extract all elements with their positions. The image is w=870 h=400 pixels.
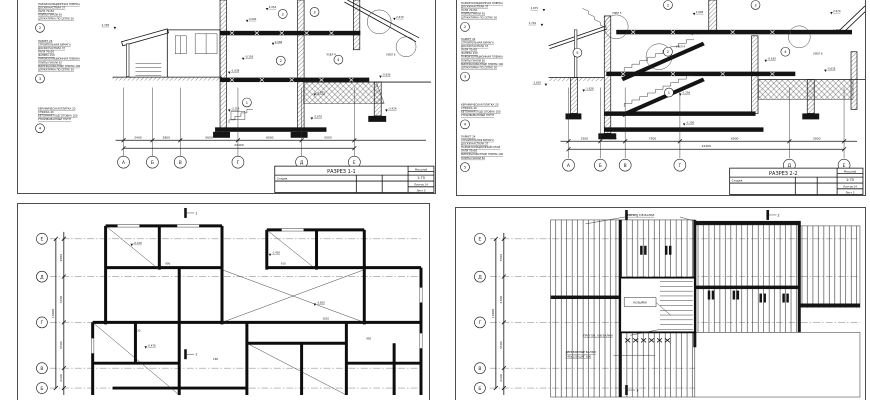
level-mark: -2.678 <box>314 114 323 118</box>
level-mark: -3.206 <box>686 120 695 124</box>
pier-hatched <box>570 78 577 114</box>
joist-bay <box>620 220 695 278</box>
dim-total: 22400 <box>702 144 712 148</box>
framing-plan-drawing: Е Д Г В Б 3500 4500 4500 2100 16000 <box>456 208 865 400</box>
detail-label: УЗЕЛ 5 <box>612 11 622 15</box>
sheet-section-2-2: ПАРОИЗОЛЯЦИОННАЯ ПЛЕНКА ДОСКИ НАСТИЛА 37… <box>456 0 866 196</box>
note-line: ПАРОИЗОЛЯЦИОННАЯ ПЛЕНКА <box>38 2 80 6</box>
section-cut-number: 2 <box>777 213 779 217</box>
scale-label: Масштаб <box>415 167 428 171</box>
section-1-1-drawing: ПАРОИЗОЛЯЦИОННАЯ ПЛЕНКА ДОСКИ НАСТИЛА 37… <box>18 0 435 193</box>
dim-value: 2500 <box>581 136 589 140</box>
porch-roof <box>122 29 169 46</box>
framing: КОЗЫРЕК <box>551 220 860 397</box>
note-line: ПАРОИЗОЛЯЦИОННАЯ ПЛЕНКА <box>461 55 503 59</box>
note-line: ПЛИТЫ ПАКЛИ 50 <box>461 58 485 62</box>
grid-letter: Г <box>679 163 682 169</box>
note-line: СТРОИТЕЛЬНАЯ БУМАГА <box>461 40 494 44</box>
note-line: ЛАГИ 70х50 <box>38 50 54 54</box>
level-mark: -0.476 <box>147 343 156 347</box>
dim-value: 6000 <box>731 136 739 140</box>
node-number: 2 <box>667 3 669 7</box>
dim-value: 4700 <box>59 296 63 304</box>
window-gaps <box>93 226 421 353</box>
section-cut-number: 1 <box>636 213 638 217</box>
soil-hatch <box>759 80 854 100</box>
level-mark: 1.704 <box>529 21 537 25</box>
spec-notes: ПАРОИЗОЛЯЦИОННАЯ ПЛЕНКА ДОСКИ НАСТИЛА 37… <box>35 2 80 133</box>
note-line: ШТУКАТУРКА ПО СЕТКЕ 30 <box>461 65 497 69</box>
basement-slab <box>604 127 763 131</box>
note-line: ШТУКАТУРКА ПО СЕТКЕ 30 <box>38 16 74 20</box>
upper-stair <box>582 8 606 27</box>
level-mark: -0.156 <box>245 55 254 59</box>
grid-letter: Е <box>353 160 356 166</box>
note-line: КЕРАМИЧЕСКАЯ ПЛИТКА 20 <box>461 102 499 106</box>
node-number: 1 <box>246 101 248 105</box>
note-line: ПАРКЕТ 24 <box>461 134 476 138</box>
spec-notes: ПАРОИЗОЛЯЦИОННАЯ ПЛЕНКА ДОСКИ НАСТИЛА 37… <box>461 1 504 172</box>
node-number: 2 <box>667 50 669 54</box>
note-line: ДОСКИ НАСТИЛА 37 <box>461 44 489 48</box>
level-mark: -1.256 <box>682 91 691 95</box>
sheet-section-1-1: ПАРОИЗОЛЯЦИОННАЯ ПЛЕНКА ДОСКИ НАСТИЛА 37… <box>17 0 436 194</box>
level-mark: 2.048 <box>275 40 283 44</box>
porch-steps <box>135 64 161 76</box>
level-mark: 2.728 <box>102 23 110 27</box>
note-line: МИНЕРАЛОВАТНЫЕ ПЛИТЫ 100 <box>461 62 504 66</box>
footing-pad <box>213 132 230 138</box>
note-line: ЛАГИ 70х50 <box>38 9 54 13</box>
small-dim: 1810 <box>322 316 329 320</box>
small-dim: 900 <box>165 262 170 266</box>
level-mark: -0.470 <box>133 241 142 245</box>
node-number: 3 <box>313 10 315 14</box>
grid-letter: Д <box>40 274 44 280</box>
grid-letter: Б <box>151 160 154 166</box>
section-cut-flag <box>766 210 769 220</box>
level-mark: -3.214 <box>231 106 240 110</box>
stage-label: Стадия <box>277 177 288 181</box>
dim-value: 5000 <box>324 135 332 139</box>
grid-letter: Е <box>41 237 44 243</box>
dim-total: 22400 <box>234 143 244 147</box>
section-cut-flag <box>625 210 628 220</box>
level-mark: 2.670 <box>396 15 404 19</box>
level-mark: 1.296 <box>833 28 841 32</box>
section-cut-number: 1 <box>195 211 197 215</box>
level-mark: 3.048 <box>696 10 704 14</box>
note-line: БЕТОННАЯ ПОДГОТОВКА 100 <box>38 114 78 118</box>
section-2-2-drawing: ПАРОИЗОЛЯЦИОННАЯ ПЛЕНКА ДОСКИ НАСТИЛА 37… <box>457 0 865 195</box>
note-number: 2 <box>39 26 41 30</box>
porch-post <box>127 44 129 77</box>
scale-value: 1:75 <box>417 176 425 180</box>
note-number: 3 <box>464 75 466 79</box>
detail-label: УЗЕЛ 6 <box>386 53 396 57</box>
wall-hatched <box>298 0 304 132</box>
note-line: ДОСКИ НАСТИЛА 37 <box>38 46 66 50</box>
note-line: СТЯЖКА 40 <box>461 106 477 110</box>
grid-letter: В <box>624 163 627 169</box>
grid-letter: Е <box>479 237 482 243</box>
small-dim: 950 <box>366 336 371 340</box>
section-cut-flag <box>184 349 187 359</box>
stage-label: Стадия <box>732 179 743 183</box>
pier-footing <box>802 113 819 119</box>
level-mark: 3.000 <box>249 17 257 21</box>
note-line: БЕТОННАЯ ПОДГОТОВКА 100 <box>461 110 501 114</box>
dim-value: 4500 <box>59 341 63 349</box>
pier-footing <box>368 116 386 122</box>
note-line: МИНЕРАЛОВАТНЫЕ ПЛИТЫ 100 <box>461 152 504 156</box>
dim-value: 3000 <box>813 136 821 140</box>
note-line: ФАНЕРА 150 <box>461 51 478 55</box>
note-number: 3 <box>39 77 41 81</box>
scale-label: Масштаб <box>844 169 857 173</box>
level-mark: -1.620 <box>533 81 542 85</box>
roof-slab-right <box>790 30 852 34</box>
note-line: ШТУКАТУРКА ПО СЕТКЕ 30 <box>461 15 497 19</box>
section-cut-number: 1 <box>636 389 638 393</box>
plan-walls <box>91 225 422 395</box>
detail-label: УЗЕЛ 6 <box>813 52 823 56</box>
beams-label: ДЕРЕВЯННЫЕ БАЛКИ <box>565 350 595 354</box>
note-line: ШТУКАТУРКА ПО СЕТКЕ 30 <box>38 67 74 71</box>
level-mark: -0.636 <box>382 73 391 77</box>
note-line: ПАРКЕТ 24 <box>461 37 476 41</box>
note-line: ДОСКИ НАСТИЛА 37 <box>38 6 66 10</box>
joist-bay <box>695 225 799 332</box>
note-line: ЛАГИ 70х50 <box>461 149 477 153</box>
note-line: ПЛИТЫ ПАКЛИ 50 <box>461 156 485 160</box>
level-mark: 2.675 <box>531 6 539 10</box>
joist-bay <box>551 220 621 397</box>
girder-label: ПРОГОН, Х/В БАЛКИ <box>583 333 612 337</box>
node-number: 2 <box>282 12 284 16</box>
section-cut-flag <box>184 208 187 218</box>
pier-footing <box>565 113 581 119</box>
floor-plan-drawing: Е Д Г В Б 2980 4700 4500 2100 16000 -0.4… <box>18 204 429 400</box>
level-mark: 2.670 <box>833 9 841 13</box>
level-mark: -0.636 <box>827 67 836 71</box>
joist-bay <box>799 226 860 308</box>
detail-node-circle <box>367 10 391 34</box>
stair-stringer <box>621 78 705 117</box>
dim-total: 16000 <box>51 309 55 319</box>
detail-label: УЗЕЛ 4 <box>326 53 336 57</box>
level-mark: -3.650 <box>317 300 326 304</box>
dim-value: 2100 <box>59 374 63 382</box>
dim-value: 4500 <box>499 296 503 304</box>
sheets-count: Листов 14 <box>414 182 428 186</box>
floor-slab <box>220 78 369 82</box>
grid-letter: Д <box>300 160 304 166</box>
sheet-number: Лист 5 <box>846 190 855 194</box>
beams-label: 240х120 ШАГ 600 <box>565 355 591 359</box>
ground-hatch <box>113 78 222 81</box>
small-dim: 180 <box>213 357 218 361</box>
note-line: СТЯЖКА 40 <box>38 110 54 114</box>
grid-letter: Г <box>237 160 240 166</box>
section-cut-flag <box>625 385 628 395</box>
pier-hatched <box>807 80 814 114</box>
dim-total: 16000 <box>491 309 495 319</box>
level-mark: -0.875 <box>317 91 326 95</box>
level-mark: -1.638 <box>231 69 240 73</box>
note-line: ФАНЕРА 150 <box>38 53 55 57</box>
scale-value: 1:75 <box>846 178 854 182</box>
node-number: 5 <box>576 51 578 55</box>
footing-pad <box>291 132 308 138</box>
detail-label: УЗЕЛ 4 <box>676 45 686 49</box>
level-mark: -0.630 <box>767 57 776 61</box>
grid-letter: Г <box>479 320 482 326</box>
node-number: 2 <box>280 59 282 63</box>
note-line: СТРОИТЕЛЬНАЯ БУМАГА <box>461 138 494 142</box>
note-line: ДОСКИ НАСТИЛА 37 <box>461 5 489 9</box>
chimney <box>709 0 717 32</box>
detail-node-circle <box>396 37 416 57</box>
title-block: РАЗРЕЗ 2-2 Масштаб 1:75 Листов 14 Лист 5… <box>730 168 863 194</box>
level-mark: 0.954 <box>694 30 702 34</box>
note-number: 2 <box>464 25 466 29</box>
floor-slab <box>220 31 360 35</box>
basement-slab <box>215 127 326 131</box>
note-line: ПАРКЕТ 24 <box>38 39 53 43</box>
note-line: ПЛИТЫ ПАКЛИ 50 <box>38 13 62 17</box>
sheet-floor-plan: Е Д Г В Б 2980 4700 4500 2100 16000 -0.4… <box>17 203 430 400</box>
grid-letter: В <box>478 366 481 372</box>
sheet-title: РАЗРЕЗ 1-1 <box>327 169 356 175</box>
stair-steps <box>624 40 694 71</box>
note-line: КЕРАМИЧЕСКАЯ ПЛИТКА 20 <box>38 106 76 110</box>
dim-value: 2800 <box>163 135 171 139</box>
detail-node-circle <box>788 26 810 48</box>
beam <box>551 296 621 299</box>
sheets-count: Листов 14 <box>843 184 857 188</box>
dim-value: 6000 <box>266 135 274 139</box>
dim-value: 7500 <box>649 136 657 140</box>
node-number: 3 <box>754 3 756 7</box>
pier-hatched <box>374 82 381 116</box>
grid-letter: Г <box>41 320 44 326</box>
top-beam <box>695 221 799 225</box>
node-number: 1 <box>668 91 670 95</box>
note-line: ЛАГИ 70х50 <box>461 8 477 12</box>
building-section <box>549 0 865 139</box>
beam <box>695 286 799 289</box>
beam <box>799 304 860 307</box>
small-dim: 910 <box>281 262 286 266</box>
dim-value: 3500 <box>499 254 503 262</box>
kozyrek-label: КОЗЫРЕК <box>633 301 647 305</box>
grid-letter: Д <box>478 274 482 280</box>
note-line: ПЛИТЫ ПАКЛИ 50 <box>461 12 485 16</box>
dim-value: 4500 <box>499 341 503 349</box>
level-mark: 4.054 <box>269 5 277 9</box>
drawing-canvas: ПАРОИЗОЛЯЦИОННАЯ ПЛЕНКА ДОСКИ НАСТИЛА 37… <box>0 0 870 400</box>
grid-letter: Б <box>40 386 43 392</box>
note-line: ДОСКИ НАСТИЛА 37 <box>461 141 489 145</box>
title-block: РАЗРЕЗ 1-1 Масштаб 1:75 Листов 14 Лист 5… <box>275 166 434 192</box>
note-line: ПАРОИЗОЛЯЦИОННАЯ ПЛЕНКА <box>461 1 503 5</box>
section-cut-number: 1 <box>195 353 197 357</box>
wall-hatched <box>220 0 226 132</box>
grid-letter: Б <box>599 163 602 169</box>
note-line: ПЛИТЫ ПАКЛИ 50 <box>38 60 62 64</box>
small-dim: 120 <box>135 328 140 332</box>
level-mark: -1.430 <box>272 251 281 255</box>
grid-letter: Б <box>478 386 481 392</box>
note-line: СТРОИТЕЛЬНАЯ БУМАГА <box>38 42 71 46</box>
dim-value: 5600 <box>205 135 213 139</box>
note-line: ПАРОИЗОЛЯЦИОННАЯ ПЛЕНКА <box>38 57 80 61</box>
roof-slope-right <box>840 6 865 33</box>
sheet-number: Лист 5 <box>416 188 425 192</box>
grid-letter: В <box>40 366 43 372</box>
sheet-title: РАЗРЕЗ 2-2 <box>769 171 798 177</box>
note-number: 5 <box>464 166 466 170</box>
level-mark: -1.628 <box>585 87 594 91</box>
dim-value: 2400 <box>134 135 142 139</box>
floor-slab <box>616 30 790 34</box>
sheet-framing-plan: Е Д Г В Б 3500 4500 4500 2100 16000 <box>455 207 866 400</box>
beam-vertical <box>798 221 801 332</box>
grid-letter: В <box>179 160 182 166</box>
level-mark: -3.424 <box>388 106 397 110</box>
porch-roof-slope <box>549 26 608 49</box>
dim-value: 2100 <box>499 374 503 382</box>
dim-value: 2980 <box>59 254 63 262</box>
building-section <box>113 0 431 138</box>
note-line: ЛАГИ 70х50 <box>461 48 477 52</box>
dim-value: 1500 <box>609 136 617 140</box>
note-line: МИНЕРАЛОВАТНЫЕ ПЛИТЫ 100 <box>38 64 81 68</box>
terrace-outline <box>695 332 860 397</box>
